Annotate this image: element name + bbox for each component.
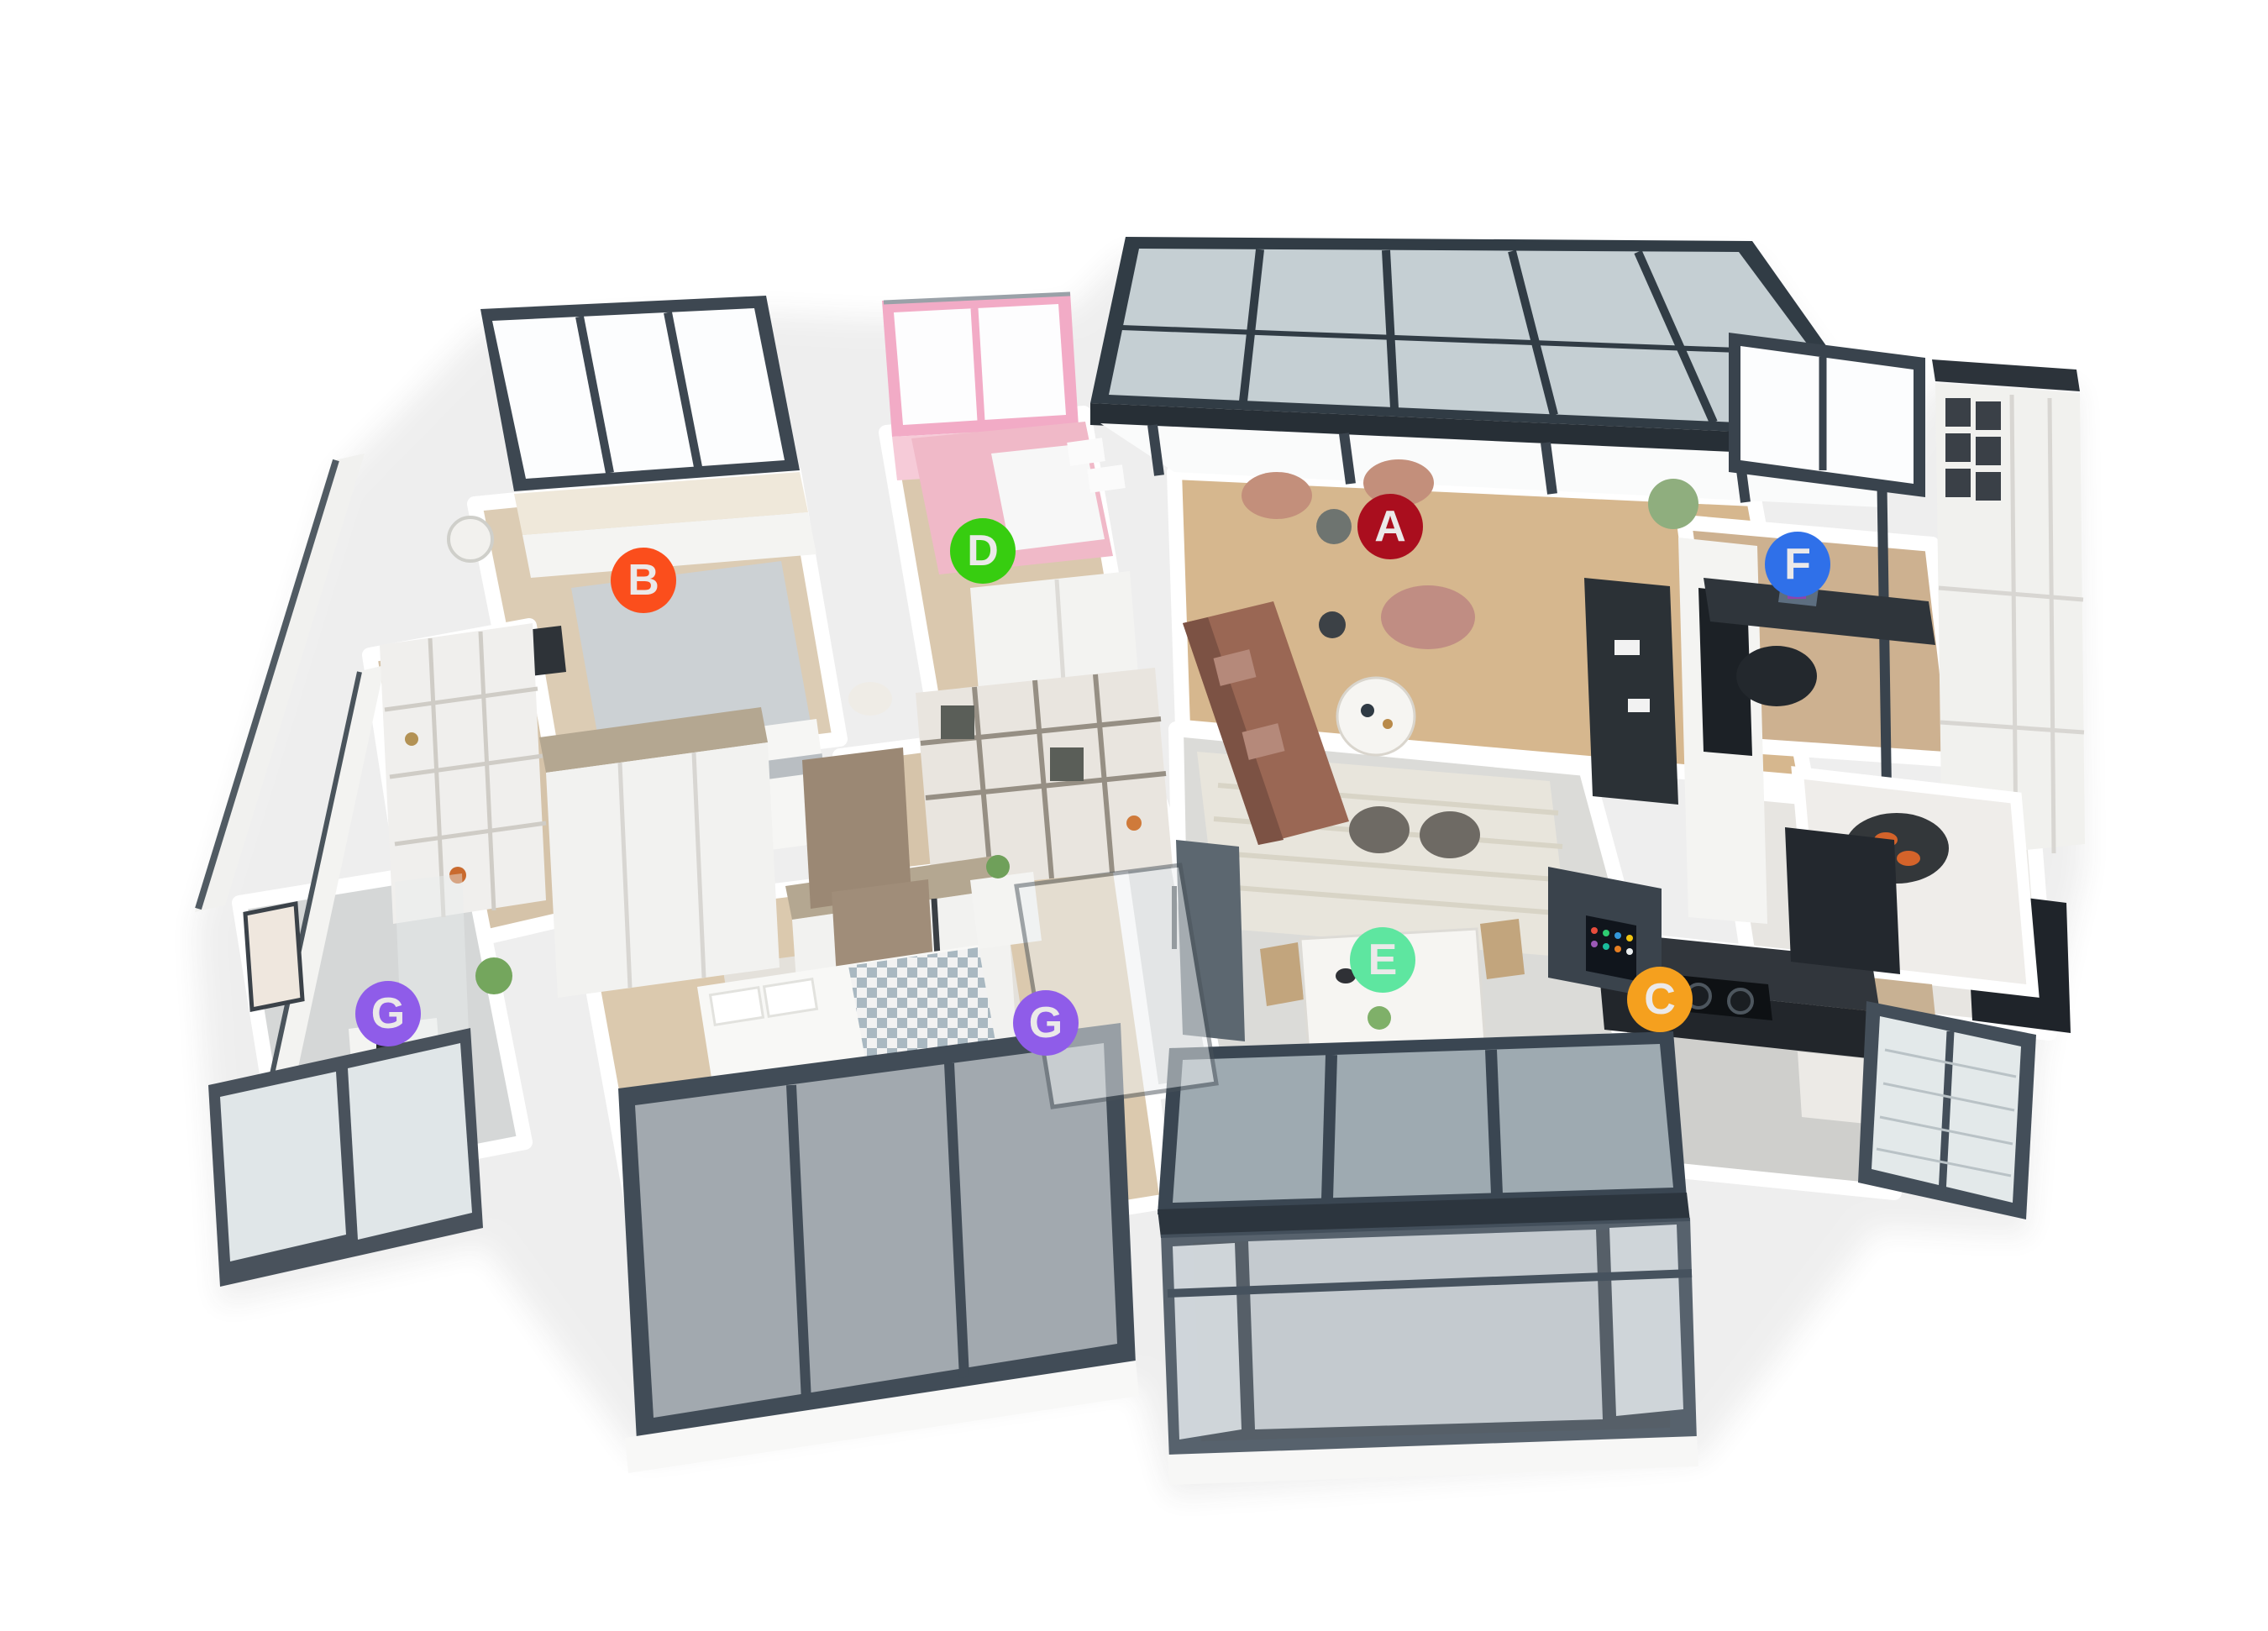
marker-letter: F <box>1784 543 1811 586</box>
marker-letter: G <box>371 992 405 1036</box>
marker-g2-middle-bathroom-shower[interactable]: G <box>1013 990 1079 1056</box>
marker-letter: A <box>1374 505 1406 548</box>
marker-c-kitchen-stove[interactable]: C <box>1627 967 1693 1032</box>
marker-g1-left-bathroom-laundry[interactable]: G <box>355 981 421 1046</box>
marker-a-terrace-sunroom[interactable]: A <box>1357 494 1423 559</box>
marker-letter: C <box>1644 978 1676 1021</box>
marker-layer: ABCDEFGG <box>0 0 2268 1631</box>
marker-b-master-bedroom-bay-window[interactable]: B <box>611 548 676 613</box>
marker-letter: D <box>967 529 999 573</box>
marker-letter: G <box>1029 1001 1063 1045</box>
marker-letter: E <box>1368 938 1398 982</box>
marker-letter: B <box>627 559 659 602</box>
marker-e-dining-table[interactable]: E <box>1350 927 1415 993</box>
marker-d-kids-bedroom[interactable]: D <box>950 518 1016 584</box>
marker-f-study-desk[interactable]: F <box>1765 532 1830 597</box>
floorplan-screenshot: ABCDEFGG <box>0 0 2268 1631</box>
